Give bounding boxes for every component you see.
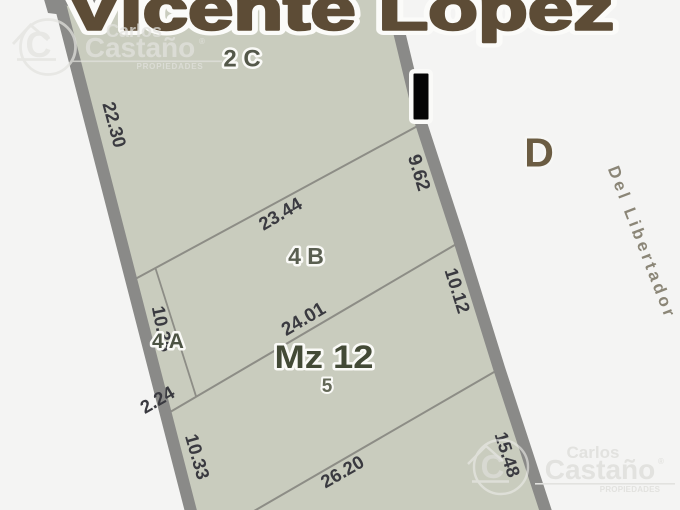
svg-text:Castaño: Castaño: [85, 32, 195, 63]
svg-text:C: C: [26, 24, 52, 65]
svg-text:4 A: 4 A: [152, 330, 184, 353]
svg-text:®: ®: [658, 457, 664, 466]
svg-text:2 C: 2 C: [223, 46, 260, 73]
svg-text:PROPIEDADES: PROPIEDADES: [600, 485, 661, 494]
svg-text:®: ®: [199, 37, 205, 46]
svg-text:C: C: [481, 448, 505, 485]
svg-text:PROPIEDADES: PROPIEDADES: [136, 62, 203, 71]
svg-text:Mz 12: Mz 12: [275, 339, 374, 375]
svg-text:D: D: [524, 130, 554, 176]
svg-text:Castaño: Castaño: [545, 454, 655, 485]
svg-text:4 B: 4 B: [288, 243, 324, 269]
svg-text:5: 5: [322, 376, 333, 397]
